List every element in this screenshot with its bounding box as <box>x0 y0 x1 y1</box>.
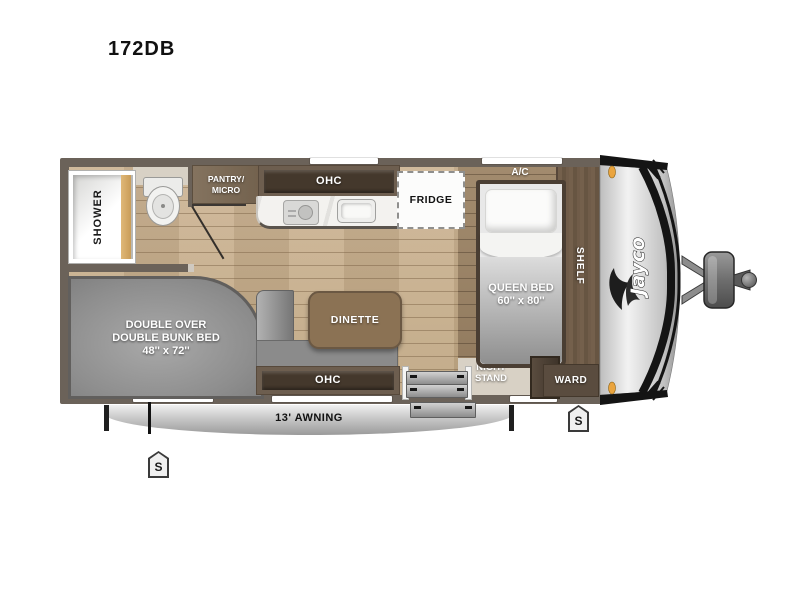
ac-label: A/C <box>480 167 560 179</box>
shower-curtain <box>121 175 133 259</box>
bed-pillow <box>485 189 557 233</box>
stabilizer-marker-left: S <box>148 451 169 478</box>
window-top-bedroom <box>482 158 562 164</box>
pantry-label: PANTRY/ MICRO <box>208 174 244 194</box>
fridge-label: FRIDGE <box>410 194 453 206</box>
queen-bed: QUEEN BED 60'' x 80'' <box>476 180 566 368</box>
bed-sheet <box>480 233 562 259</box>
pantry-micro-cabinet: PANTRY/ MICRO <box>192 165 260 204</box>
fridge: FRIDGE <box>397 171 465 229</box>
bed-blanket <box>480 257 562 364</box>
dinette-label: DINETTE <box>331 314 379 326</box>
stove-burner <box>298 205 313 220</box>
overhead-cabinet-top: OHC <box>258 165 400 198</box>
stabilizer-marker-right: S <box>568 405 589 432</box>
entry-step-3 <box>410 402 476 418</box>
entry-step-2 <box>406 384 468 398</box>
wardrobe: WARD <box>543 364 599 397</box>
double-bunk-bed: DOUBLE OVER DOUBLE BUNK BED 48'' x 72'' <box>68 276 264 399</box>
front-cap: Jayco <box>598 152 762 410</box>
hitch-ball-icon <box>742 273 757 288</box>
bathroom-wall-end <box>188 264 194 272</box>
toilet-icon <box>146 186 180 226</box>
awning-support-arm <box>148 402 151 434</box>
window-top-galley <box>310 158 378 164</box>
jayco-logo-text: Jayco <box>627 237 649 300</box>
shower: SHOWER <box>68 170 136 264</box>
overhead-cabinet-top-label: OHC <box>316 175 342 188</box>
queen-bed-label: QUEEN BED 60'' x 80'' <box>474 282 568 308</box>
sink-icon <box>337 199 376 223</box>
model-title: 172DB <box>108 38 175 61</box>
overhead-cabinet-bottom-label: OHC <box>315 374 341 387</box>
propane-tank-highlight <box>708 256 717 304</box>
entry-step-1 <box>406 371 468 385</box>
stove-controls <box>288 207 296 217</box>
stabilizer-marker-right-letter: S <box>570 407 587 430</box>
shower-pan: SHOWER <box>73 175 123 259</box>
shower-label: SHOWER <box>92 189 104 245</box>
toilet-flush-dot <box>161 204 165 208</box>
overhead-cabinet-bottom: OHC <box>256 366 400 395</box>
clearance-light-top-icon <box>609 166 616 178</box>
dinette-table: DINETTE <box>308 291 402 349</box>
bathroom-partition-wall <box>60 264 188 272</box>
shelf-label: SHELF <box>573 247 585 285</box>
sink-basin <box>341 203 372 219</box>
wardrobe-label: WARD <box>555 375 588 387</box>
window-bottom-dinette <box>272 396 392 402</box>
stove-icon <box>283 200 319 225</box>
bunk-label: DOUBLE OVER DOUBLE BUNK BED 48'' x 72'' <box>71 319 261 358</box>
clearance-light-bottom-icon <box>609 382 616 394</box>
stabilizer-marker-left-letter: S <box>150 453 167 476</box>
floorplan-canvas: 172DB SHOWER SHELF PANTRY/ MICRO OHC FR <box>0 0 800 600</box>
